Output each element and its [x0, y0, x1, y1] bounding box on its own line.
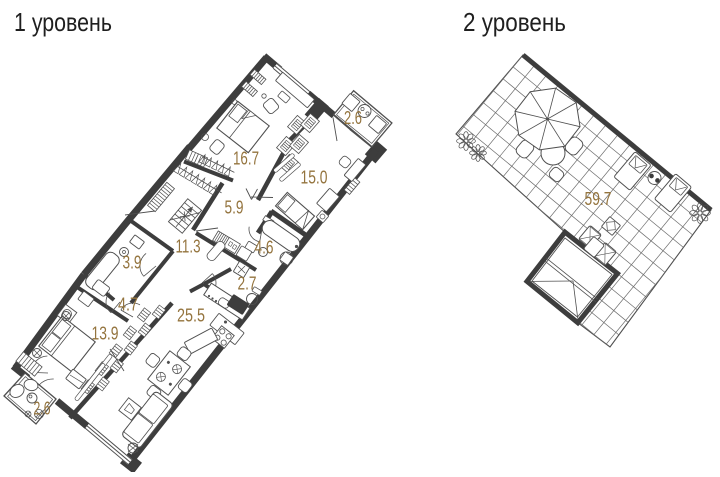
- svg-text:13.9: 13.9: [92, 324, 119, 344]
- svg-text:2 уровень: 2 уровень: [463, 7, 566, 37]
- svg-text:15.0: 15.0: [301, 168, 328, 188]
- svg-text:4.7: 4.7: [118, 295, 138, 315]
- svg-text:59.7: 59.7: [585, 189, 612, 209]
- svg-text:11.3: 11.3: [176, 237, 201, 257]
- svg-text:4.6: 4.6: [255, 238, 274, 258]
- svg-text:2.7: 2.7: [238, 274, 257, 294]
- svg-text:16.7: 16.7: [233, 149, 259, 169]
- svg-text:2.6: 2.6: [344, 108, 362, 128]
- svg-text:2.6: 2.6: [34, 399, 51, 419]
- svg-text:25.5: 25.5: [177, 306, 205, 326]
- svg-text:3.9: 3.9: [123, 253, 142, 273]
- svg-text:1 уровень: 1 уровень: [14, 7, 112, 37]
- svg-text:5.9: 5.9: [225, 198, 244, 218]
